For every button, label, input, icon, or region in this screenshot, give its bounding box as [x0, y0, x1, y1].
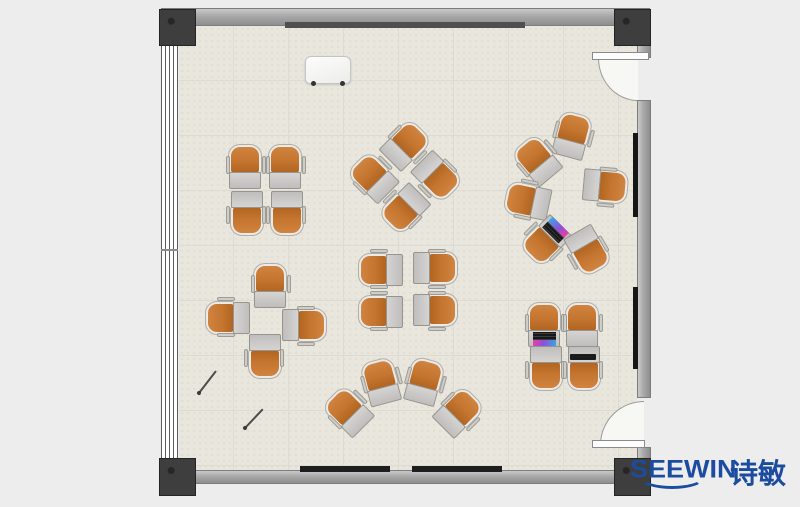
chair-desk-unit	[580, 166, 629, 208]
door-leaf-top-right	[592, 52, 649, 60]
chair-armrest	[599, 361, 603, 379]
chair-desk-unit	[564, 302, 602, 348]
chair-armrest	[226, 206, 230, 224]
chair-armrest	[428, 285, 446, 289]
chair-armrest	[428, 249, 446, 253]
column-top-left	[159, 9, 196, 46]
chair-armrest	[287, 275, 291, 293]
chair-armrest	[370, 291, 388, 295]
right-wall-panel-bottom	[633, 287, 638, 369]
tablet-desk	[282, 309, 299, 341]
tablet-desk	[229, 172, 261, 189]
tablet-desk	[271, 191, 303, 208]
chair-armrest	[217, 333, 235, 337]
chair-armrest	[280, 349, 284, 367]
tablet-desk	[233, 302, 250, 334]
chair-desk-unit	[281, 307, 327, 345]
tablet-desk	[386, 296, 403, 328]
chair-seat	[598, 172, 626, 202]
chair-desk-unit	[412, 292, 458, 330]
right-wall-panel-top	[633, 133, 638, 217]
chair-desk-unit	[252, 263, 290, 309]
chair-desk-unit	[267, 190, 305, 236]
column-bottom-left	[159, 458, 196, 496]
bottom-wall-screen-right	[412, 466, 502, 472]
chair-desk-unit	[205, 298, 251, 336]
chair-desk-unit	[267, 144, 305, 190]
chair-seat	[570, 362, 598, 388]
chair-desk-unit	[358, 292, 404, 330]
chair-armrest	[428, 291, 446, 295]
chair-armrest	[428, 327, 446, 331]
chair-seat	[271, 147, 299, 173]
chair-desk-unit	[564, 345, 602, 391]
chair-armrest	[244, 349, 248, 367]
chair-seat	[231, 147, 259, 173]
tablet-desk	[386, 254, 403, 286]
bottom-wall-screen-left	[300, 466, 390, 472]
chair-armrest	[525, 361, 529, 379]
tablet-desk	[582, 168, 602, 201]
chair-seat	[208, 304, 234, 332]
chair-seat	[568, 305, 596, 331]
wall-bottom	[195, 470, 617, 484]
chair-armrest	[297, 306, 315, 310]
logo-swoosh-icon	[640, 467, 704, 489]
chair-seat	[298, 311, 324, 339]
chair-armrest	[302, 206, 306, 224]
chair-seat	[530, 305, 558, 331]
chair-desk-unit	[526, 345, 564, 391]
chair-armrest	[302, 156, 306, 174]
tablet-device	[570, 354, 596, 360]
wall-right	[637, 100, 651, 398]
chair-seat	[233, 207, 261, 233]
floor-plan: SEEWIN 诗敏	[0, 0, 800, 507]
chair-armrest	[563, 361, 567, 379]
tablet-desk	[269, 172, 301, 189]
chair-armrest	[297, 342, 315, 346]
laptop-keyboard	[533, 332, 556, 340]
tablet-desk	[530, 346, 562, 363]
brand-logo: SEEWIN 诗敏	[628, 451, 796, 497]
tablet-desk	[249, 334, 281, 351]
chair-seat	[361, 298, 387, 326]
tablet-desk	[413, 252, 430, 284]
chair-seat	[532, 362, 560, 388]
tablet-desk	[413, 294, 430, 326]
column-top-right	[614, 9, 651, 46]
chair-seat	[256, 266, 284, 292]
chair-desk-unit	[526, 302, 564, 348]
chair-armrest	[266, 206, 270, 224]
door-leaf-bottom-right	[592, 440, 645, 448]
chair-armrest	[370, 327, 388, 331]
chair-seat	[429, 254, 455, 282]
chair-seat	[361, 256, 387, 284]
chair-seat	[251, 350, 279, 376]
chair-desk-unit	[358, 250, 404, 288]
mobile-whiteboard	[305, 56, 351, 84]
chair-desk-unit	[227, 190, 265, 236]
tablet-desk	[254, 291, 286, 308]
window-mullion-joint	[161, 249, 178, 251]
logo-chinese-text: 诗敏	[730, 452, 786, 492]
tablet-desk	[231, 191, 263, 208]
chair-desk-unit	[227, 144, 265, 190]
chair-desk-unit	[245, 333, 283, 379]
top-wall-board	[285, 22, 525, 28]
whiteboard-caster	[311, 81, 316, 86]
chair-seat	[273, 207, 301, 233]
chair-seat	[429, 296, 455, 324]
chair-armrest	[599, 314, 603, 332]
chair-armrest	[217, 297, 235, 301]
whiteboard-caster	[340, 81, 345, 86]
chair-desk-unit	[412, 250, 458, 288]
chair-armrest	[370, 249, 388, 253]
chair-armrest	[370, 285, 388, 289]
window-wall-left	[161, 45, 178, 460]
